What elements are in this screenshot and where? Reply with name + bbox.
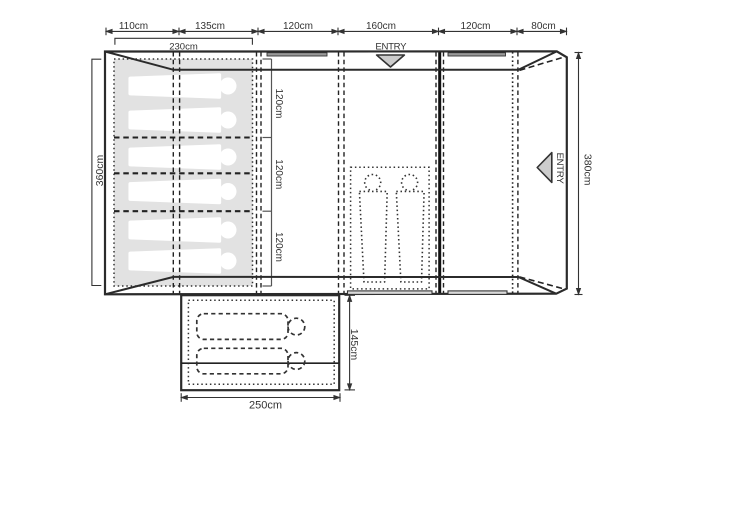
svg-text:ENTRY: ENTRY: [375, 41, 407, 52]
svg-text:135cm: 135cm: [195, 21, 225, 32]
svg-text:110cm: 110cm: [119, 21, 148, 32]
svg-text:160cm: 160cm: [366, 21, 396, 32]
svg-text:250cm: 250cm: [249, 400, 282, 412]
svg-text:380cm: 380cm: [582, 154, 594, 186]
svg-text:ENTRY: ENTRY: [554, 153, 565, 185]
svg-text:120cm: 120cm: [273, 159, 284, 189]
svg-text:120cm: 120cm: [273, 88, 284, 118]
svg-text:145cm: 145cm: [348, 329, 360, 361]
svg-text:120cm: 120cm: [283, 21, 313, 32]
svg-text:120cm: 120cm: [460, 21, 490, 32]
svg-text:80cm: 80cm: [531, 21, 555, 32]
svg-text:120cm: 120cm: [273, 232, 284, 262]
